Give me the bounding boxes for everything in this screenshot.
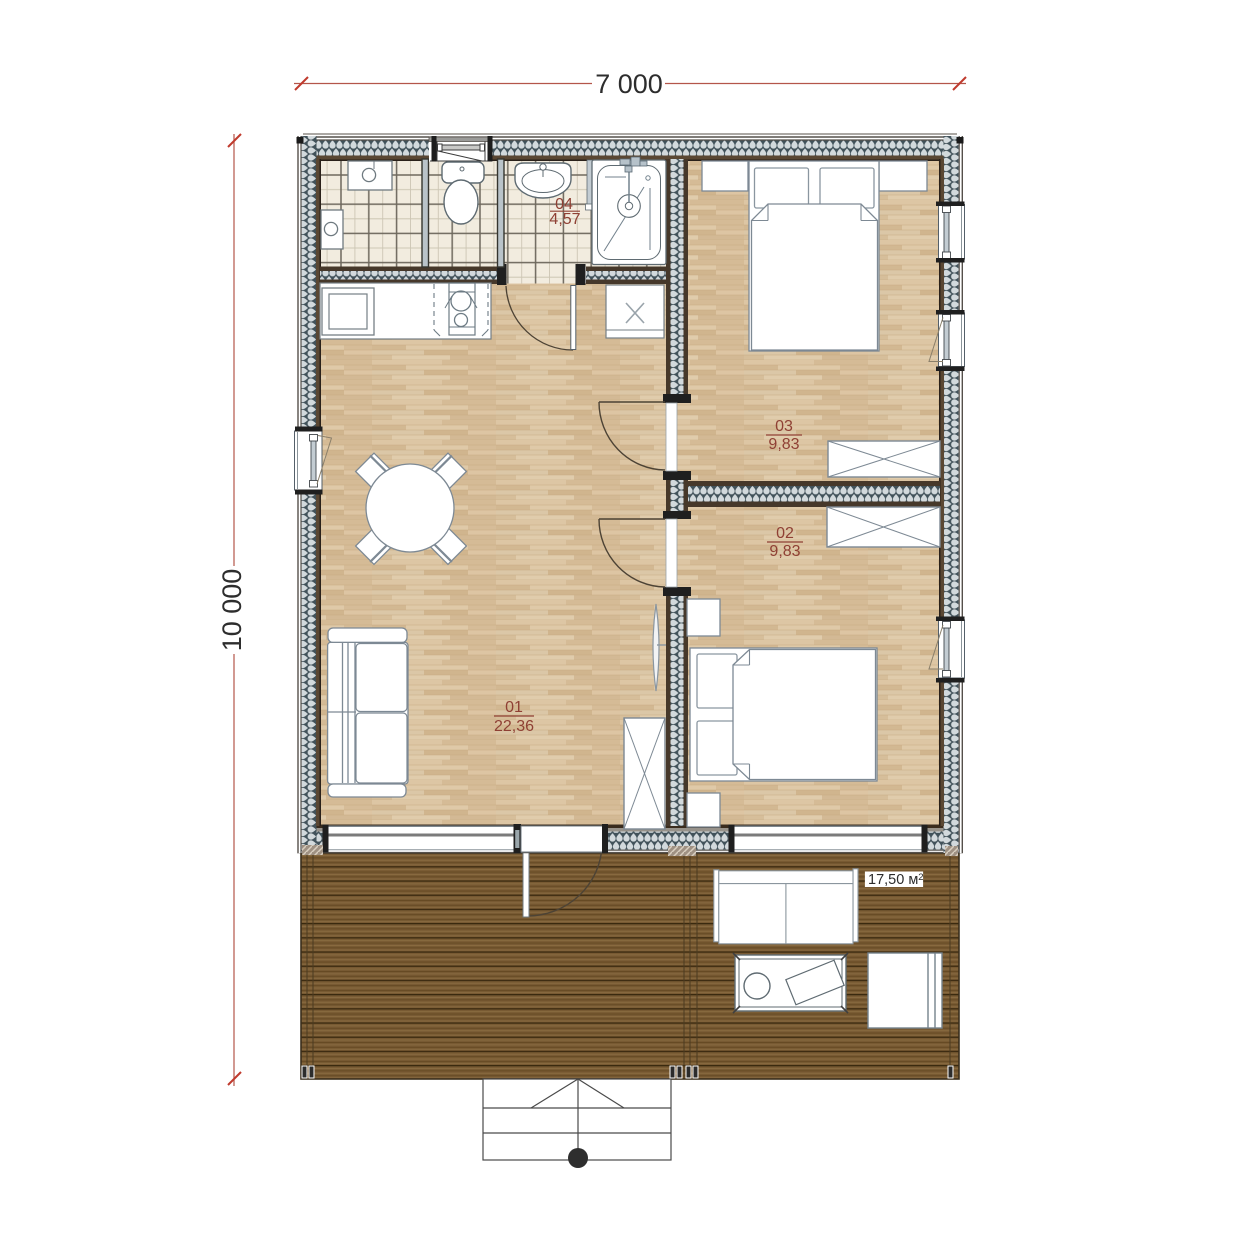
svg-text:02: 02	[776, 525, 794, 542]
svg-text:9,83: 9,83	[768, 436, 799, 453]
svg-text:22,36: 22,36	[494, 718, 534, 735]
svg-text:17,50 м2: 17,50 м2	[868, 872, 924, 888]
svg-text:7 000: 7 000	[595, 69, 663, 99]
svg-text:4,57: 4,57	[549, 211, 580, 228]
svg-text:10 000: 10 000	[217, 569, 247, 652]
svg-text:01: 01	[505, 699, 523, 716]
svg-text:03: 03	[775, 418, 793, 435]
svg-text:9,83: 9,83	[769, 543, 800, 560]
